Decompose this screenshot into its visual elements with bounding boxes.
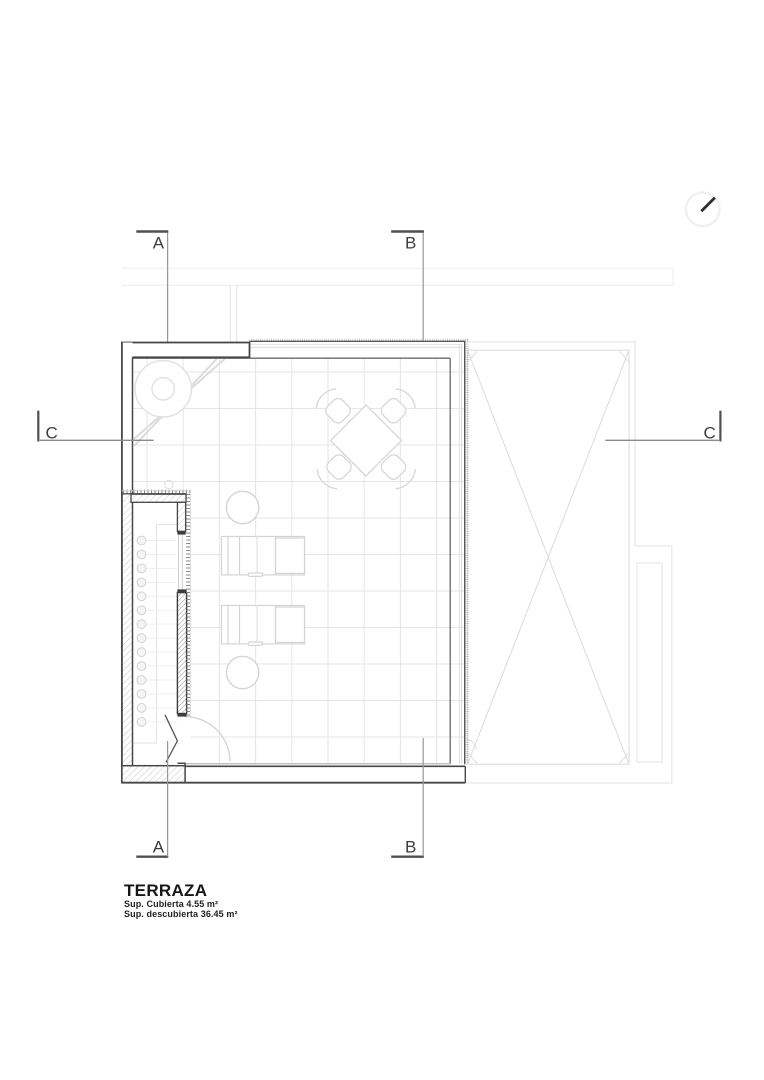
svg-text:A: A <box>153 838 165 857</box>
svg-text:C: C <box>704 424 716 443</box>
svg-text:B: B <box>405 838 416 857</box>
svg-text:A: A <box>153 233 165 252</box>
svg-text:B: B <box>405 233 416 252</box>
svg-text:C: C <box>46 424 58 443</box>
